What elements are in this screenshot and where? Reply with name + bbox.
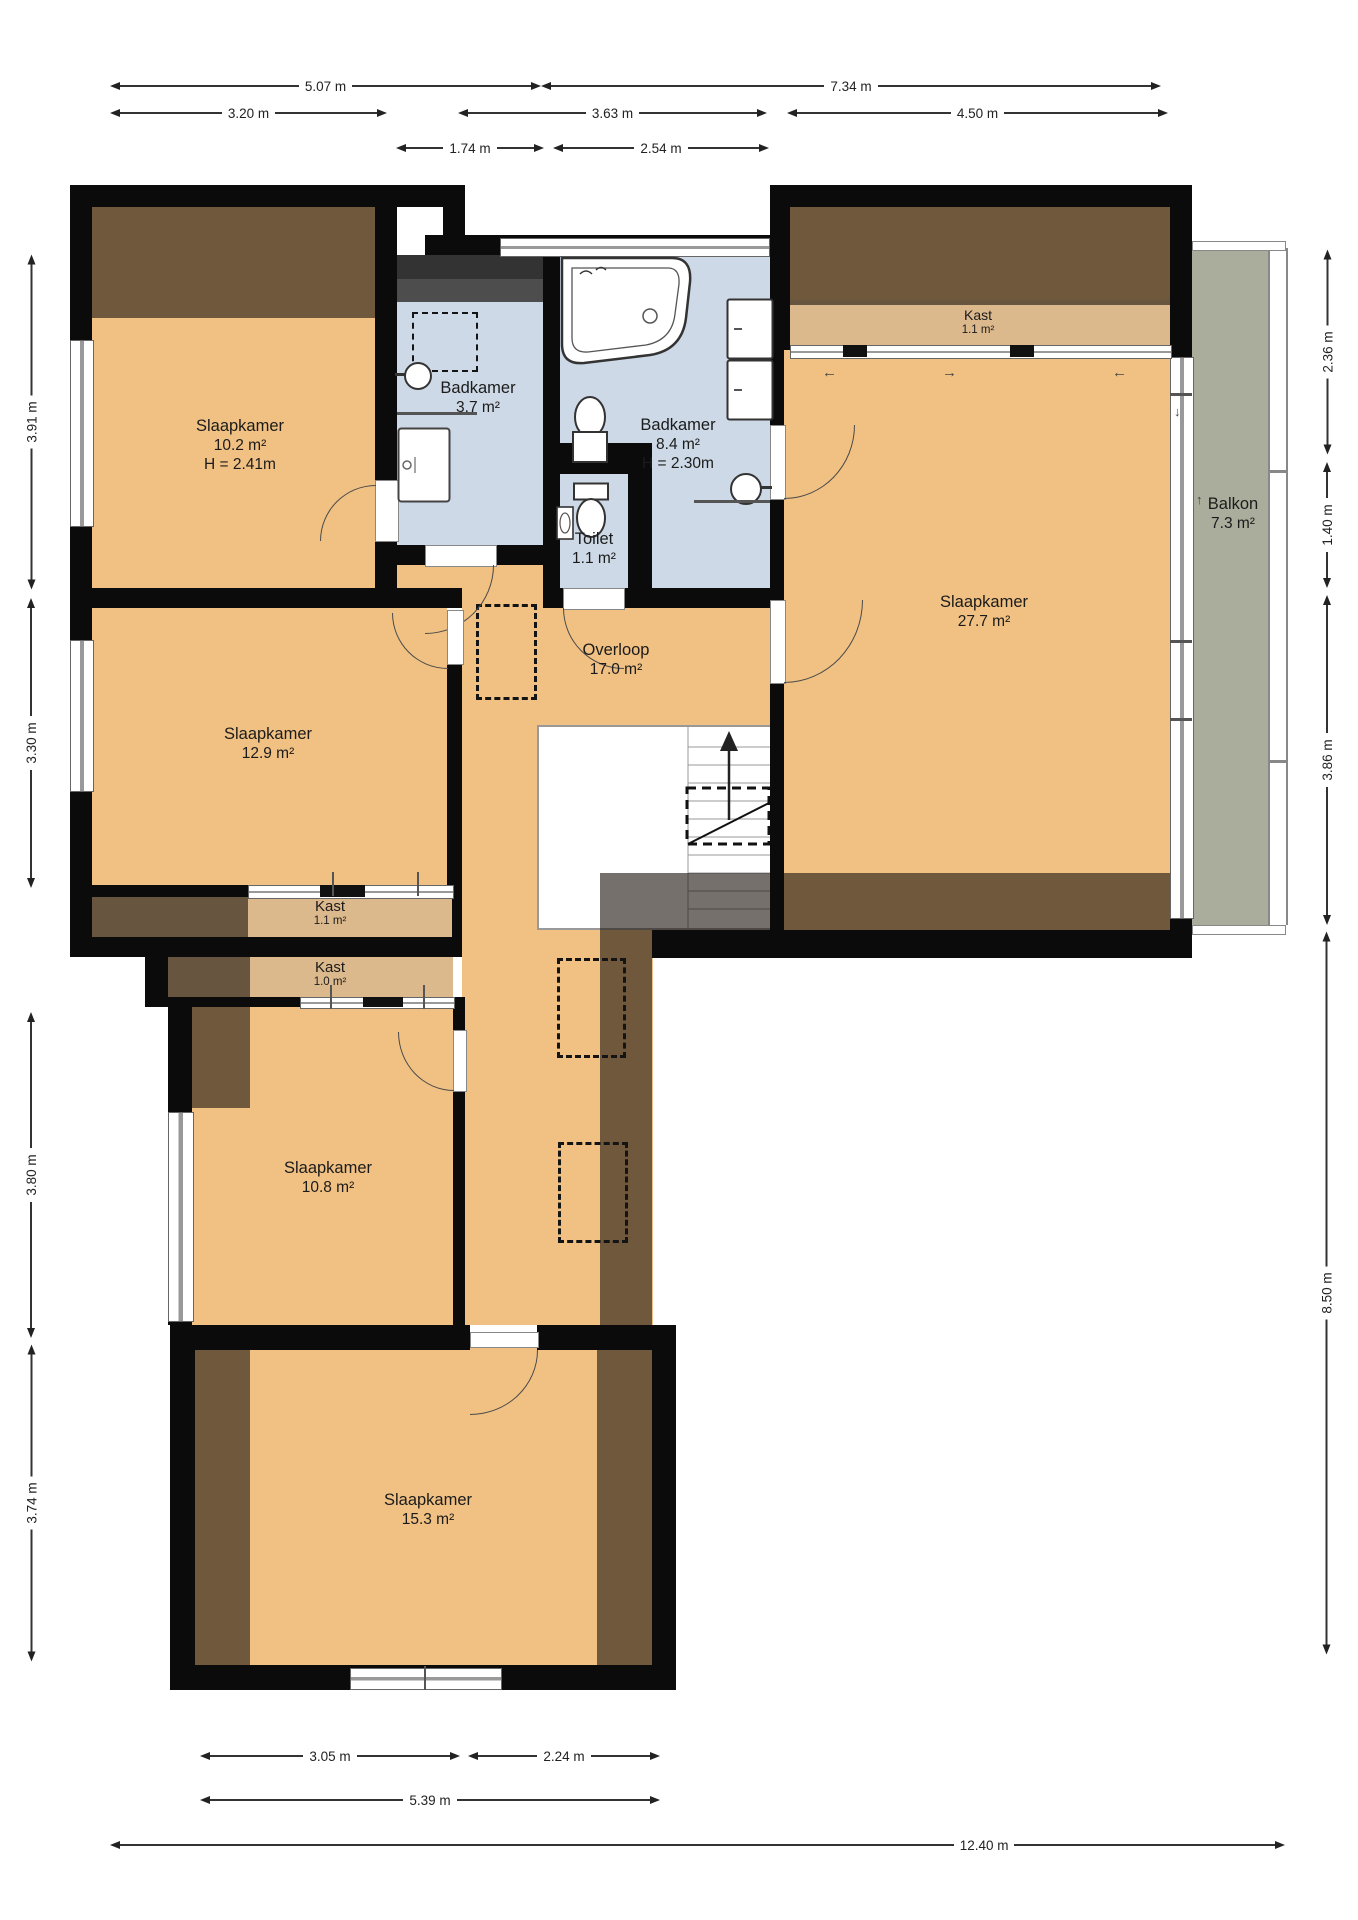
arrow-down-icon: ↓: [1174, 404, 1181, 419]
dimension: 3.74 m: [22, 1345, 42, 1662]
wall: [770, 185, 1192, 207]
door: [447, 610, 464, 665]
door: [425, 545, 497, 567]
sloped-ceiling-overlay: [192, 1007, 250, 1108]
wall: [170, 1325, 195, 1690]
dimension: 3.63 m: [458, 103, 767, 123]
window: [70, 340, 94, 527]
room-label-landing: Overloop 17.0 m²: [583, 641, 650, 679]
door: [453, 1030, 467, 1092]
wall: [652, 930, 1192, 958]
sink-icon: [404, 362, 432, 390]
arrow-left-icon: ←: [822, 365, 837, 380]
dimension: 3.80 m: [21, 1012, 41, 1338]
arrow-right-icon: →: [942, 365, 957, 380]
sloped-ceiling-overlay: [195, 1350, 250, 1665]
room-label-bedroom-south: Slaapkamer 15.3 m²: [384, 1491, 472, 1529]
cabinet-icon: [726, 298, 774, 422]
sloped-ceiling-overlay: [600, 873, 652, 1325]
room-label-balcony: Balkon 7.3 m²: [1208, 495, 1258, 533]
roof-window: [558, 1142, 628, 1243]
room-label-closet-w1: Kast 1.1 m²: [314, 899, 347, 929]
balcony-glass-door: [1170, 357, 1194, 919]
floor-balcony: [1192, 248, 1268, 925]
wall: [145, 957, 168, 1007]
towel-rail: [694, 500, 770, 503]
sloped-ceiling-overlay: [397, 255, 543, 279]
dimension: 3.20 m: [110, 103, 387, 123]
room-label-bath-large: Badkamer 8.4 m² H = 2.30m: [640, 416, 715, 473]
room-label-bath-small: Badkamer 3.7 m²: [440, 379, 515, 417]
window: [70, 640, 94, 792]
dimension: 8.50 m: [1317, 932, 1337, 1655]
wall: [652, 1325, 676, 1690]
washing-machine-icon: [397, 427, 451, 503]
dimension: 12.40 m: [110, 1835, 1285, 1855]
window-tick: [1170, 393, 1192, 396]
room-label-bedroom-west: Slaapkamer 12.9 m²: [224, 725, 312, 763]
wall: [375, 207, 397, 480]
door: [470, 1332, 539, 1348]
bathtub-icon: [560, 256, 696, 366]
balcony-railing: [1192, 925, 1286, 935]
wall: [192, 1325, 470, 1350]
arrow-up-icon: ↑: [1196, 492, 1203, 507]
arrow-left-icon: ←: [1112, 365, 1127, 380]
dimension: 3.91 m: [22, 255, 42, 590]
dimension: 4.50 m: [787, 103, 1168, 123]
sliding-door-panel: [363, 997, 403, 1007]
rail-tick: [417, 872, 419, 896]
balcony-railing: [1268, 248, 1288, 925]
window-tick: [424, 1666, 426, 1690]
dimension: 2.24 m: [468, 1746, 660, 1766]
door: [375, 480, 399, 542]
dimension: 3.30 m: [21, 598, 41, 888]
door: [563, 588, 625, 610]
dimension: 3.05 m: [200, 1746, 460, 1766]
balcony-railing: [1192, 241, 1286, 251]
sliding-door-panel: [320, 885, 365, 897]
sloped-ceiling-overlay: [597, 1350, 652, 1665]
wall: [447, 663, 462, 885]
room-label-toilet: Toilet 1.1 m²: [572, 530, 616, 568]
dimension: 1.40 m: [1317, 462, 1337, 588]
wall: [70, 185, 92, 957]
window: [350, 1668, 502, 1690]
room-label-closet-ne: Kast 1.1 m²: [962, 308, 995, 338]
window-tick: [1170, 640, 1192, 643]
dimension: 3.86 m: [1317, 595, 1337, 925]
window-tick: [1170, 718, 1192, 721]
dimension: 2.36 m: [1318, 250, 1338, 455]
dimension: 5.07 m: [110, 76, 541, 96]
sloped-ceiling-overlay: [397, 279, 543, 302]
sliding-door-panel: [1010, 345, 1034, 357]
dimension: 1.74 m: [396, 138, 544, 158]
sloped-ceiling-overlay: [92, 207, 375, 318]
window: [500, 238, 770, 257]
sloped-ceiling-overlay: [652, 873, 1170, 930]
wall: [537, 1325, 652, 1350]
wall: [770, 498, 784, 600]
railing-tick: [1268, 470, 1286, 473]
floor-plan: ↓ ↑ ← → ←: [0, 0, 1358, 1920]
railing-tick: [1268, 760, 1286, 763]
dimension: 7.34 m: [541, 76, 1161, 96]
wall: [453, 1090, 465, 1325]
roof-window: [476, 604, 537, 700]
wall: [70, 885, 248, 897]
dimension: 5.39 m: [200, 1790, 660, 1810]
sliding-door-panel: [843, 345, 867, 357]
room-label-closet-w2: Kast 1.0 m²: [314, 960, 347, 990]
toilet-icon: [570, 396, 610, 466]
sloped-ceiling-overlay: [784, 207, 1170, 305]
wall: [70, 185, 465, 207]
wall: [70, 588, 462, 608]
wall: [168, 997, 300, 1007]
rail-tick: [423, 985, 425, 1009]
wall: [92, 937, 462, 957]
room-label-bedroom-east: Slaapkamer 27.7 m²: [940, 593, 1028, 631]
window: [168, 1112, 194, 1322]
dimension: 2.54 m: [553, 138, 769, 158]
wall: [770, 682, 784, 930]
rail-tick: [332, 872, 334, 896]
room-label-bedroom-sw: Slaapkamer 10.8 m²: [284, 1159, 372, 1197]
roof-window: [557, 958, 626, 1058]
room-label-bedroom-nw: Slaapkamer 10.2 m² H = 2.41m: [196, 417, 284, 474]
